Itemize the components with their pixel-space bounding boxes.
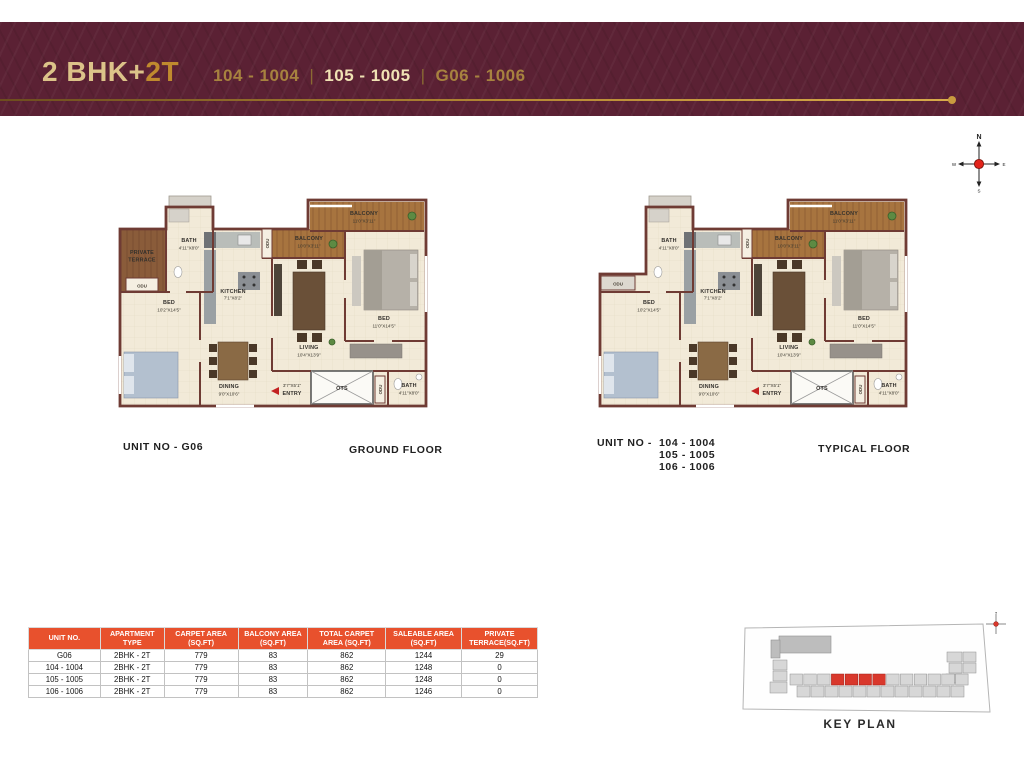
room-label-balcony-top: BALCONY <box>350 211 378 217</box>
entry-label: ENTRY <box>282 391 301 397</box>
ots-label: OTS <box>816 386 828 392</box>
table-row: 105 - 10052BHK - 2T7798386212480 <box>29 674 538 686</box>
floor-caption-typical: TYPICAL FLOOR <box>818 443 910 455</box>
col-header-total-carpet-area: TOTAL CARPET AREA (SQ.FT) <box>308 628 386 650</box>
key-plan-compass-n: N <box>995 612 998 615</box>
col-header-private-terrace: PRIVATE TERRACE(SQ.FT) <box>462 628 538 650</box>
odu-label-ots: ODU <box>858 385 863 395</box>
odu-label-balcony: ODU <box>265 239 270 249</box>
unit-caption-prefix: UNIT NO - <box>597 437 652 473</box>
room-dim-balcony-top: 11'0"X3'11" <box>833 219 856 224</box>
gold-divider <box>0 99 952 101</box>
stair-landing <box>649 196 691 207</box>
brochure-page: 2 BHK+2T 104 - 1004|105 - 1005|G06 - 100… <box>0 0 1024 768</box>
cell-carpet-area: 779 <box>164 650 238 662</box>
room-dim-bath-top: 4'11"X8'0" <box>659 246 680 251</box>
room-dim-dining: 9'0"X10'6" <box>219 392 240 397</box>
cell-saleable-area: 1248 <box>386 674 462 686</box>
table-row: G062BHK - 2T77983862124429 <box>29 650 538 662</box>
room-dim-bed-left: 10'2"X14'5" <box>637 308 661 313</box>
odu-label-terrace: ODU <box>137 284 147 289</box>
unit-range-list: 104 - 1004|105 - 1005|G06 - 1006 <box>213 66 526 86</box>
room-label-bath-bottom: BATH <box>881 383 896 389</box>
compass-n-label: N <box>976 134 981 141</box>
cell-balcony-area: 83 <box>238 686 308 698</box>
room-dim-balcony-mid: 10'0"X3'11" <box>297 244 320 249</box>
room-label-bed-left: BED <box>643 300 655 306</box>
room-dim-kitchen: 7'1"X8'2" <box>704 296 723 301</box>
cell-apartment-type: 2BHK - 2T <box>100 674 164 686</box>
room-dim-bed-left: 10'2"X14'5" <box>157 308 181 313</box>
room-label-living: LIVING <box>779 345 798 351</box>
dining-furniture <box>689 342 737 380</box>
room-label-bed-right: BED <box>378 316 390 322</box>
cell-unit-no: 106 - 1006 <box>29 686 101 698</box>
col-header-saleable-area: SALEABLE AREA (SQ.FT) <box>386 628 462 650</box>
page-title-main: 2 BHK+ <box>42 56 145 87</box>
col-header-unit-no: UNIT NO. <box>29 628 101 650</box>
cell-private-terrace: 0 <box>462 674 538 686</box>
unit-range-105-1005: 105 - 1005 <box>324 66 410 85</box>
odu-label-unit: ODU <box>613 282 623 287</box>
unit-caption-line: 104 - 1004 <box>659 437 715 449</box>
key-plan-caption: KEY PLAN <box>795 717 925 731</box>
odu-label-ots: ODU <box>378 385 383 395</box>
compass-s-label: S <box>977 189 980 194</box>
separator: | <box>421 66 426 85</box>
stair-landing <box>169 196 211 207</box>
table-row: 104 - 10042BHK - 2T7798386212480 <box>29 662 538 674</box>
entry-dim-label: 3'7"X5'1" <box>763 383 782 388</box>
cell-carpet-area: 779 <box>164 662 238 674</box>
room-dim-bath-bottom: 4'11"X8'0" <box>879 391 900 396</box>
cell-saleable-area: 1248 <box>386 662 462 674</box>
page-title-suffix: 2T <box>145 56 179 87</box>
room-label-terrace-2: TERRACE <box>128 258 156 264</box>
header-banner: 2 BHK+2T 104 - 1004|105 - 1005|G06 - 100… <box>0 22 1024 116</box>
bed-left-furniture <box>124 352 178 398</box>
dining-furniture <box>209 342 257 380</box>
room-label-bath-top: BATH <box>181 238 196 244</box>
col-header-apartment-type: APARTMENT TYPE <box>100 628 164 650</box>
unit-caption-line: 105 - 1005 <box>659 449 715 461</box>
cell-carpet-area: 779 <box>164 674 238 686</box>
cell-unit-no: 105 - 1005 <box>29 674 101 686</box>
area-table: UNIT NO. APARTMENT TYPE CARPET AREA (SQ.… <box>28 627 538 698</box>
cell-saleable-area: 1244 <box>386 650 462 662</box>
cell-total-carpet-area: 862 <box>308 674 386 686</box>
bed-left-furniture <box>604 352 658 398</box>
unit-caption-typical: UNIT NO - 104 - 1004 105 - 1005 106 - 10… <box>597 437 715 473</box>
entry-dim-label: 3'7"X5'1" <box>283 383 302 388</box>
entry-label: ENTRY <box>762 391 781 397</box>
compass-w-label: W <box>952 162 957 167</box>
table-row: 106 - 10062BHK - 2T7798386212460 <box>29 686 538 698</box>
room-dim-balcony-mid: 10'0"X3'11" <box>777 244 800 249</box>
unit-range-g06-1006: G06 - 1006 <box>436 66 526 85</box>
cell-saleable-area: 1246 <box>386 686 462 698</box>
key-plan-compass-icon: N <box>986 612 1006 634</box>
gold-divider-dot <box>948 96 956 104</box>
room-dim-bed-right: 11'0"X14'5" <box>372 324 395 329</box>
floor-plan-ground: BALCONY 11'0"X3'11" BALCONY 10'0"X3'11" … <box>112 194 442 426</box>
room-dim-kitchen: 7'1"X8'2" <box>224 296 243 301</box>
cell-unit-no: 104 - 1004 <box>29 662 101 674</box>
compass-icon: N E S W <box>950 130 1008 194</box>
unit-caption-line: 106 - 1006 <box>659 461 715 473</box>
floor-caption-ground: GROUND FLOOR <box>349 444 443 456</box>
cell-balcony-area: 83 <box>238 674 308 686</box>
floor-plan-typical: BALCONY 11'0"X3'11" BALCONY 10'0"X3'11" … <box>592 194 922 426</box>
cell-total-carpet-area: 862 <box>308 686 386 698</box>
room-label-bath-bottom: BATH <box>401 383 416 389</box>
room-dim-living: 10'4"X13'9" <box>297 353 321 358</box>
room-dim-bath-top: 4'11"X8'0" <box>179 246 200 251</box>
room-label-dining: DINING <box>699 384 719 390</box>
room-label-bed-left: BED <box>163 300 175 306</box>
ots-label: OTS <box>336 386 348 392</box>
cell-apartment-type: 2BHK - 2T <box>100 662 164 674</box>
separator: | <box>309 66 314 85</box>
room-label-living: LIVING <box>299 345 318 351</box>
cell-balcony-area: 83 <box>238 662 308 674</box>
cell-balcony-area: 83 <box>238 650 308 662</box>
room-label-balcony-mid: BALCONY <box>775 236 803 242</box>
cell-apartment-type: 2BHK - 2T <box>100 686 164 698</box>
compass-e-label: E <box>1002 162 1005 167</box>
room-label-balcony-top: BALCONY <box>830 211 858 217</box>
room-label-bath-top: BATH <box>661 238 676 244</box>
page-title: 2 BHK+2T <box>42 56 179 88</box>
room-label-kitchen: KITCHEN <box>220 289 245 295</box>
cell-private-terrace: 29 <box>462 650 538 662</box>
room-label-kitchen: KITCHEN <box>700 289 725 295</box>
compass-center <box>974 159 983 168</box>
cell-apartment-type: 2BHK - 2T <box>100 650 164 662</box>
room-dim-balcony-top: 11'0"X3'11" <box>353 219 376 224</box>
unit-caption-ground: UNIT NO - G06 <box>123 441 203 453</box>
table-header-row: UNIT NO. APARTMENT TYPE CARPET AREA (SQ.… <box>29 628 538 650</box>
room-dim-bath-bottom: 4'11"X8'0" <box>399 391 420 396</box>
unit-range-104-1004: 104 - 1004 <box>213 66 299 85</box>
col-header-balcony-area: BALCONY AREA (SQ.FT) <box>238 628 308 650</box>
room-dim-living: 10'4"X13'9" <box>777 353 801 358</box>
room-label-terrace-1: PRIVATE <box>130 250 154 256</box>
odu-label-balcony: ODU <box>745 239 750 249</box>
room-label-bed-right: BED <box>858 316 870 322</box>
room-dim-dining: 9'0"X10'6" <box>699 392 720 397</box>
cell-carpet-area: 779 <box>164 686 238 698</box>
cell-private-terrace: 0 <box>462 662 538 674</box>
col-header-carpet-area: CARPET AREA (SQ.FT) <box>164 628 238 650</box>
cell-total-carpet-area: 862 <box>308 650 386 662</box>
cell-unit-no: G06 <box>29 650 101 662</box>
cell-total-carpet-area: 862 <box>308 662 386 674</box>
room-label-balcony-mid: BALCONY <box>295 236 323 242</box>
cell-private-terrace: 0 <box>462 686 538 698</box>
room-dim-bed-right: 11'0"X14'5" <box>852 324 875 329</box>
room-label-dining: DINING <box>219 384 239 390</box>
